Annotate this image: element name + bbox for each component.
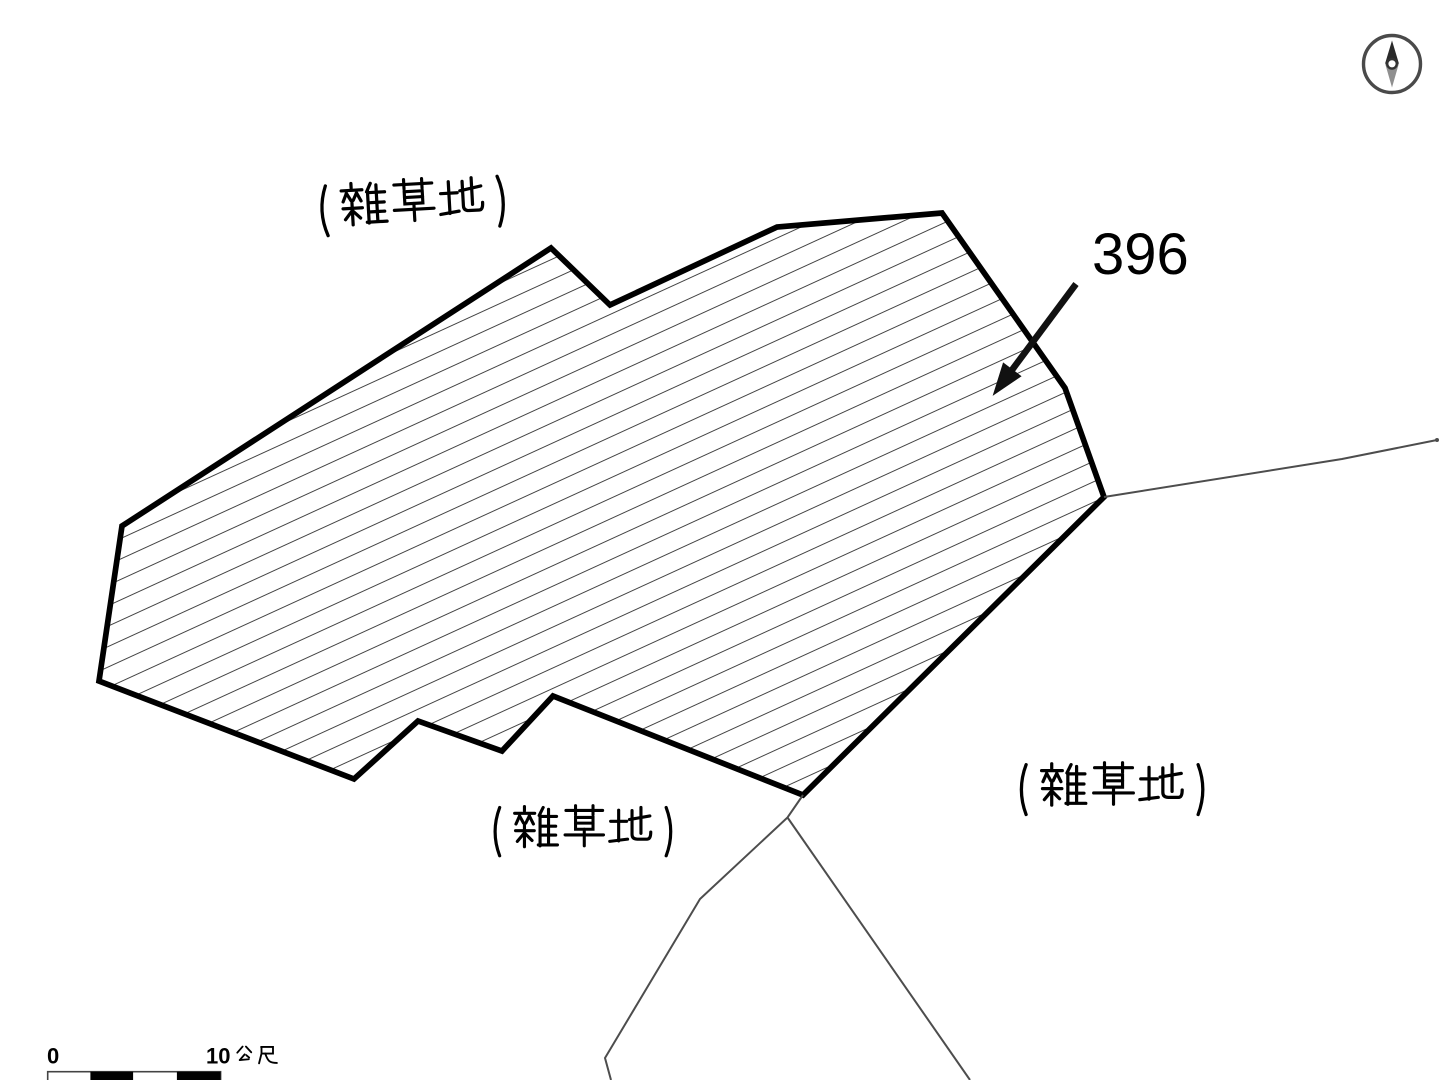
svg-text:396: 396 (1092, 222, 1189, 287)
svg-text:0: 0 (47, 1044, 59, 1069)
svg-text:10: 10 (206, 1044, 230, 1069)
